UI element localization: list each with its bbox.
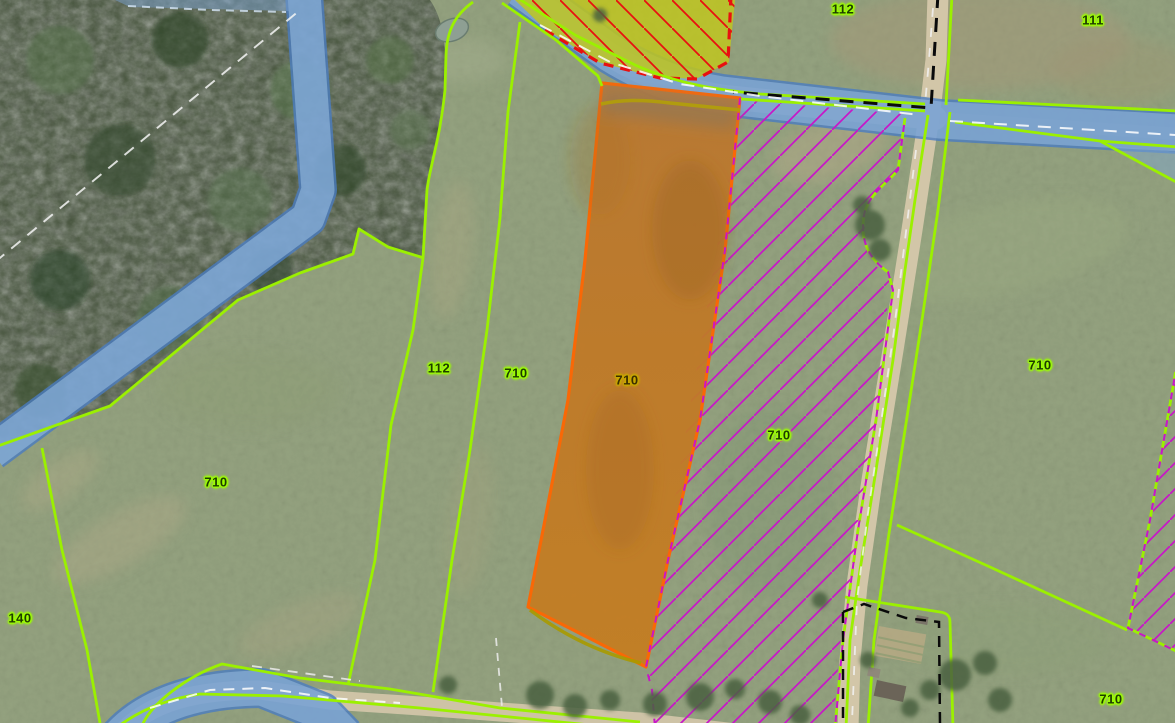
aerial-basemap bbox=[0, 0, 1175, 723]
map-viewport[interactable]: 112111112710710710710710140710 bbox=[0, 0, 1175, 723]
